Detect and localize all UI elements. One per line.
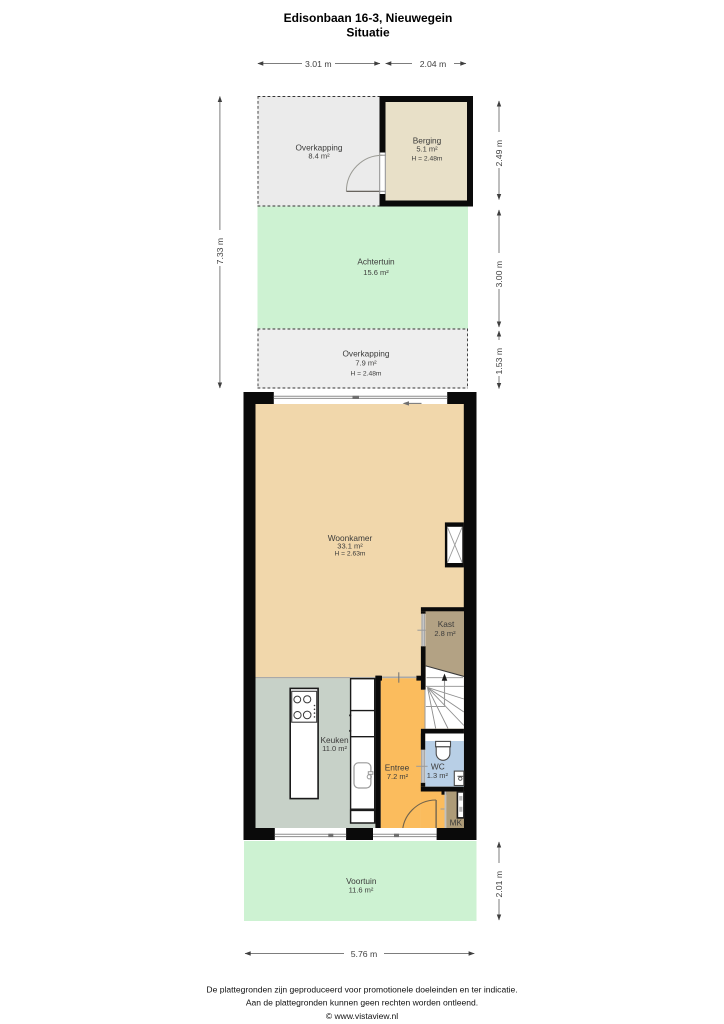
svg-text:MK: MK: [450, 817, 463, 827]
svg-text:Situatie: Situatie: [346, 26, 390, 40]
svg-text:H = 2.48m: H = 2.48m: [411, 156, 442, 163]
svg-text:5.1 m²: 5.1 m²: [416, 145, 438, 154]
svg-text:Kast: Kast: [438, 619, 455, 629]
svg-text:1.53 m: 1.53 m: [494, 348, 504, 375]
svg-text:15.6 m²: 15.6 m²: [363, 268, 389, 277]
svg-text:H = 2.48m: H = 2.48m: [350, 371, 381, 378]
svg-text:5.76 m: 5.76 m: [351, 949, 378, 959]
svg-text:2.49 m: 2.49 m: [494, 140, 504, 167]
svg-text:7.33 m: 7.33 m: [215, 238, 225, 265]
svg-text:Achtertuin: Achtertuin: [357, 256, 395, 266]
svg-text:H = 2.63m: H = 2.63m: [334, 551, 365, 558]
svg-text:1.3 m²: 1.3 m²: [427, 771, 449, 780]
svg-text:Overkapping: Overkapping: [342, 348, 389, 358]
svg-text:7.2 m²: 7.2 m²: [387, 772, 409, 781]
svg-text:33.1 m²: 33.1 m²: [337, 541, 363, 550]
svg-text:Edisonbaan 16-3, Nieuwegein: Edisonbaan 16-3, Nieuwegein: [284, 11, 453, 25]
svg-text:2.8 m²: 2.8 m²: [434, 629, 456, 638]
svg-text:11.0 m²: 11.0 m²: [322, 744, 347, 753]
svg-text:Aan de plattegronden kunnen ge: Aan de plattegronden kunnen geen rechten…: [246, 998, 478, 1008]
svg-text:WC: WC: [431, 761, 445, 771]
svg-text:7.9 m²: 7.9 m²: [355, 358, 377, 367]
svg-text:3.01 m: 3.01 m: [305, 59, 332, 69]
svg-text:© www.vistaview.nl: © www.vistaview.nl: [326, 1011, 398, 1021]
svg-text:11.6 m²: 11.6 m²: [349, 885, 374, 894]
svg-text:2.04 m: 2.04 m: [420, 59, 447, 69]
svg-text:De plattegronden zijn geproduc: De plattegronden zijn geproduceerd voor …: [206, 984, 517, 994]
svg-text:2.01 m: 2.01 m: [494, 871, 504, 898]
svg-text:3.00 m: 3.00 m: [494, 261, 504, 288]
svg-text:8.4 m²: 8.4 m²: [308, 151, 330, 160]
